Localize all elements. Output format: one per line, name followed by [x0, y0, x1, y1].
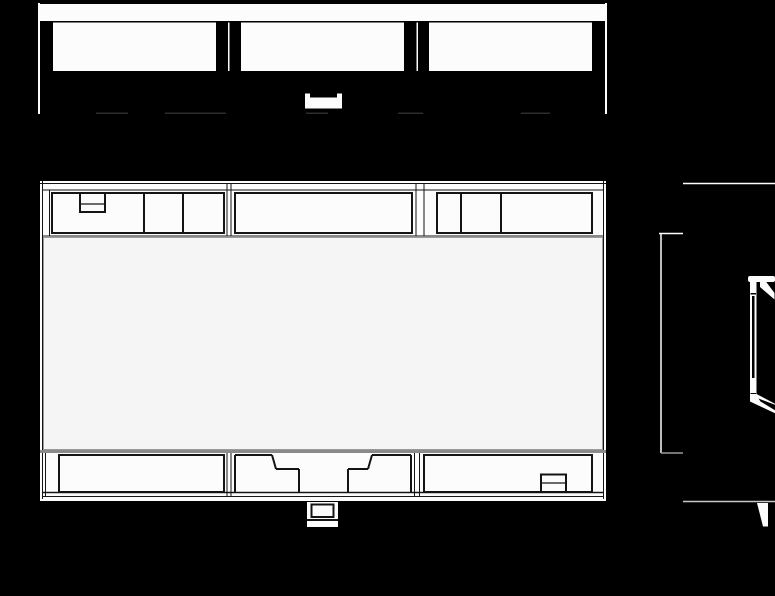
front-rim	[40, 4, 606, 21]
top-view	[38, 3, 607, 114]
rail-clip-hook	[757, 503, 768, 527]
din-rail-shadow-bar	[40, 450, 606, 453]
module-joint-line-2	[417, 23, 419, 72]
din-rail-web-core	[752, 296, 755, 378]
outline-left	[38, 3, 40, 114]
terminal-window-1	[53, 23, 216, 72]
front-plate	[44, 238, 603, 450]
module-joint-line-1	[228, 23, 230, 72]
orthographic-drawing	[0, 0, 775, 596]
front-view	[40, 181, 606, 527]
din-rail-top-lip	[760, 281, 775, 300]
terminal-window-3	[429, 23, 592, 72]
din-rail-web-tick-top	[751, 293, 757, 295]
drawing-page	[0, 0, 775, 596]
side-view	[659, 184, 775, 527]
terminal-window-2	[241, 23, 404, 72]
bus-connector	[305, 98, 342, 109]
bus-connector-ear-left	[305, 94, 310, 99]
bus-connector-ear-right	[337, 94, 342, 99]
